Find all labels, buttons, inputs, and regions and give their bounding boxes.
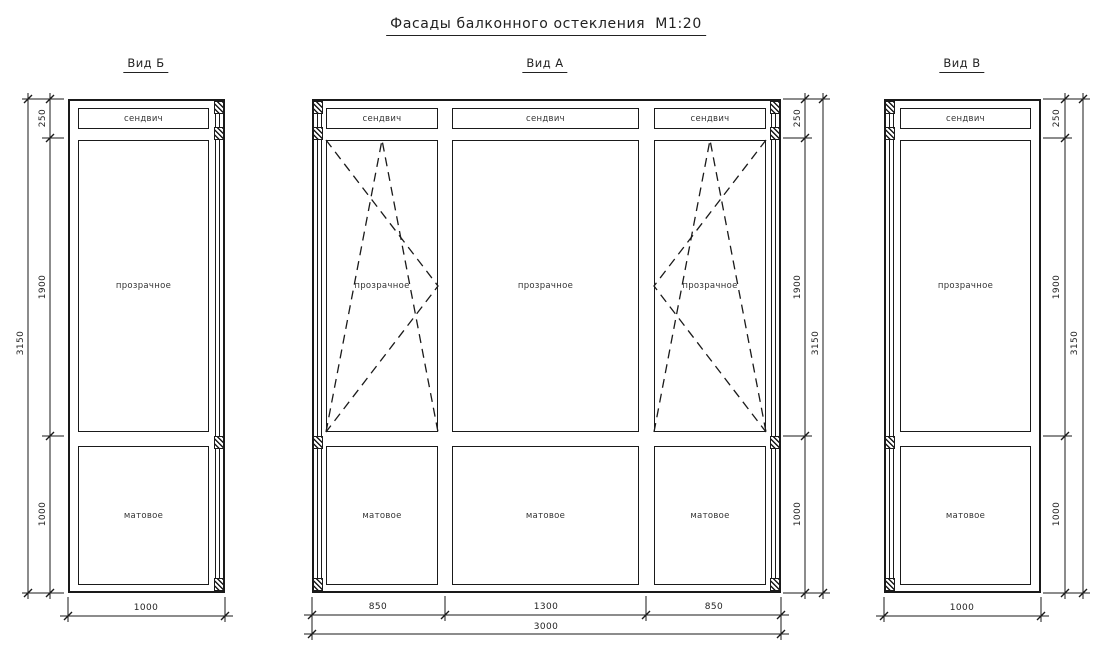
view-a-col3-matte-panel: матовое [654, 446, 766, 585]
panel-label: прозрачное [116, 281, 171, 291]
panel-label: сендвич [526, 114, 565, 124]
hatch-mark [770, 578, 780, 591]
panel-label: прозрачное [938, 281, 993, 291]
view-a-col3-glass-sash: прозрачное [654, 140, 766, 432]
panel-label: сендвич [124, 114, 163, 124]
panel-label: сендвич [363, 114, 402, 124]
dim-label-b-height: 3150 [16, 331, 26, 356]
dim-label-a-col-left: 850 [369, 602, 387, 612]
view-b-transparent-panel: прозрачное [78, 140, 209, 432]
dim-label-v-bottom: 1000 [1052, 502, 1062, 527]
view-a-col2-matte-panel: матовое [452, 446, 639, 585]
hatch-mark [885, 101, 895, 114]
dim-label-v-width: 1000 [950, 603, 975, 613]
dim-label-a-col-right: 850 [705, 602, 723, 612]
dim-label-b-middle: 1900 [38, 275, 48, 300]
view-v-label: Вид В [939, 56, 984, 73]
view-a-right-corner-profile [771, 101, 779, 591]
view-v-sandwich-panel: сендвич [900, 108, 1031, 129]
view-a-left-corner-profile [314, 101, 322, 591]
view-a-col1-matte-panel: матовое [326, 446, 438, 585]
view-b-label: Вид Б [123, 56, 168, 73]
dim-label-v-height: 3150 [1070, 331, 1080, 356]
hatch-mark [313, 578, 323, 591]
hatch-mark [770, 127, 780, 140]
hatch-mark [214, 101, 224, 114]
drawing-canvas: Фасады балконного остекления М1:20 Вид Б… [0, 0, 1115, 657]
hatch-mark [214, 436, 224, 449]
view-v-matte-panel: матовое [900, 446, 1031, 585]
view-a-col1-sandwich-panel: сендвич [326, 108, 438, 129]
view-b-sandwich-panel: сендвич [78, 108, 209, 129]
view-a-frame: сендвич прозрачное матовое сендвич прозр… [312, 99, 781, 593]
panel-label: прозрачное [518, 281, 573, 291]
panel-label: матовое [362, 511, 401, 521]
hatch-mark [770, 101, 780, 114]
dim-label-b-bottom: 1000 [38, 502, 48, 527]
dim-label-a-top: 250 [793, 109, 803, 127]
hatch-mark [885, 436, 895, 449]
hatch-mark [313, 436, 323, 449]
dim-label-b-top: 250 [38, 109, 48, 127]
panel-label: прозрачное [354, 281, 409, 291]
dim-label-a-bottom: 1000 [793, 502, 803, 527]
dim-label-a-height: 3150 [811, 331, 821, 356]
panel-label: матовое [946, 511, 985, 521]
dim-label-a-col-center: 1300 [534, 602, 559, 612]
hatch-mark [214, 578, 224, 591]
view-a-col2-sandwich-panel: сендвич [452, 108, 639, 129]
hatch-mark [885, 578, 895, 591]
panel-label: матовое [690, 511, 729, 521]
panel-label: сендвич [691, 114, 730, 124]
panel-label: сендвич [946, 114, 985, 124]
panel-label: матовое [526, 511, 565, 521]
hatch-mark [885, 127, 895, 140]
drawing-title: Фасады балконного остекления М1:20 [386, 16, 706, 36]
view-a-col3-sandwich-panel: сендвич [654, 108, 766, 129]
dim-label-a-middle: 1900 [793, 275, 803, 300]
hatch-mark [770, 436, 780, 449]
view-a-col2-glass-panel: прозрачное [452, 140, 639, 432]
dim-label-b-width: 1000 [134, 603, 159, 613]
hatch-mark [313, 101, 323, 114]
panel-label: матовое [124, 511, 163, 521]
panel-label: прозрачное [682, 281, 737, 291]
view-b-matte-panel: матовое [78, 446, 209, 585]
view-b-corner-profile [215, 101, 223, 591]
view-v-transparent-panel: прозрачное [900, 140, 1031, 432]
hatch-mark [313, 127, 323, 140]
view-v-frame: сендвич прозрачное матовое [884, 99, 1041, 593]
hatch-mark [214, 127, 224, 140]
dim-label-a-total-width: 3000 [534, 622, 559, 632]
view-a-label: Вид А [522, 56, 567, 73]
view-b-frame: сендвич прозрачное матовое [68, 99, 225, 593]
dim-label-v-top: 250 [1052, 109, 1062, 127]
view-a-col1-glass-sash: прозрачное [326, 140, 438, 432]
dim-label-v-middle: 1900 [1052, 275, 1062, 300]
view-v-corner-profile [886, 101, 894, 591]
